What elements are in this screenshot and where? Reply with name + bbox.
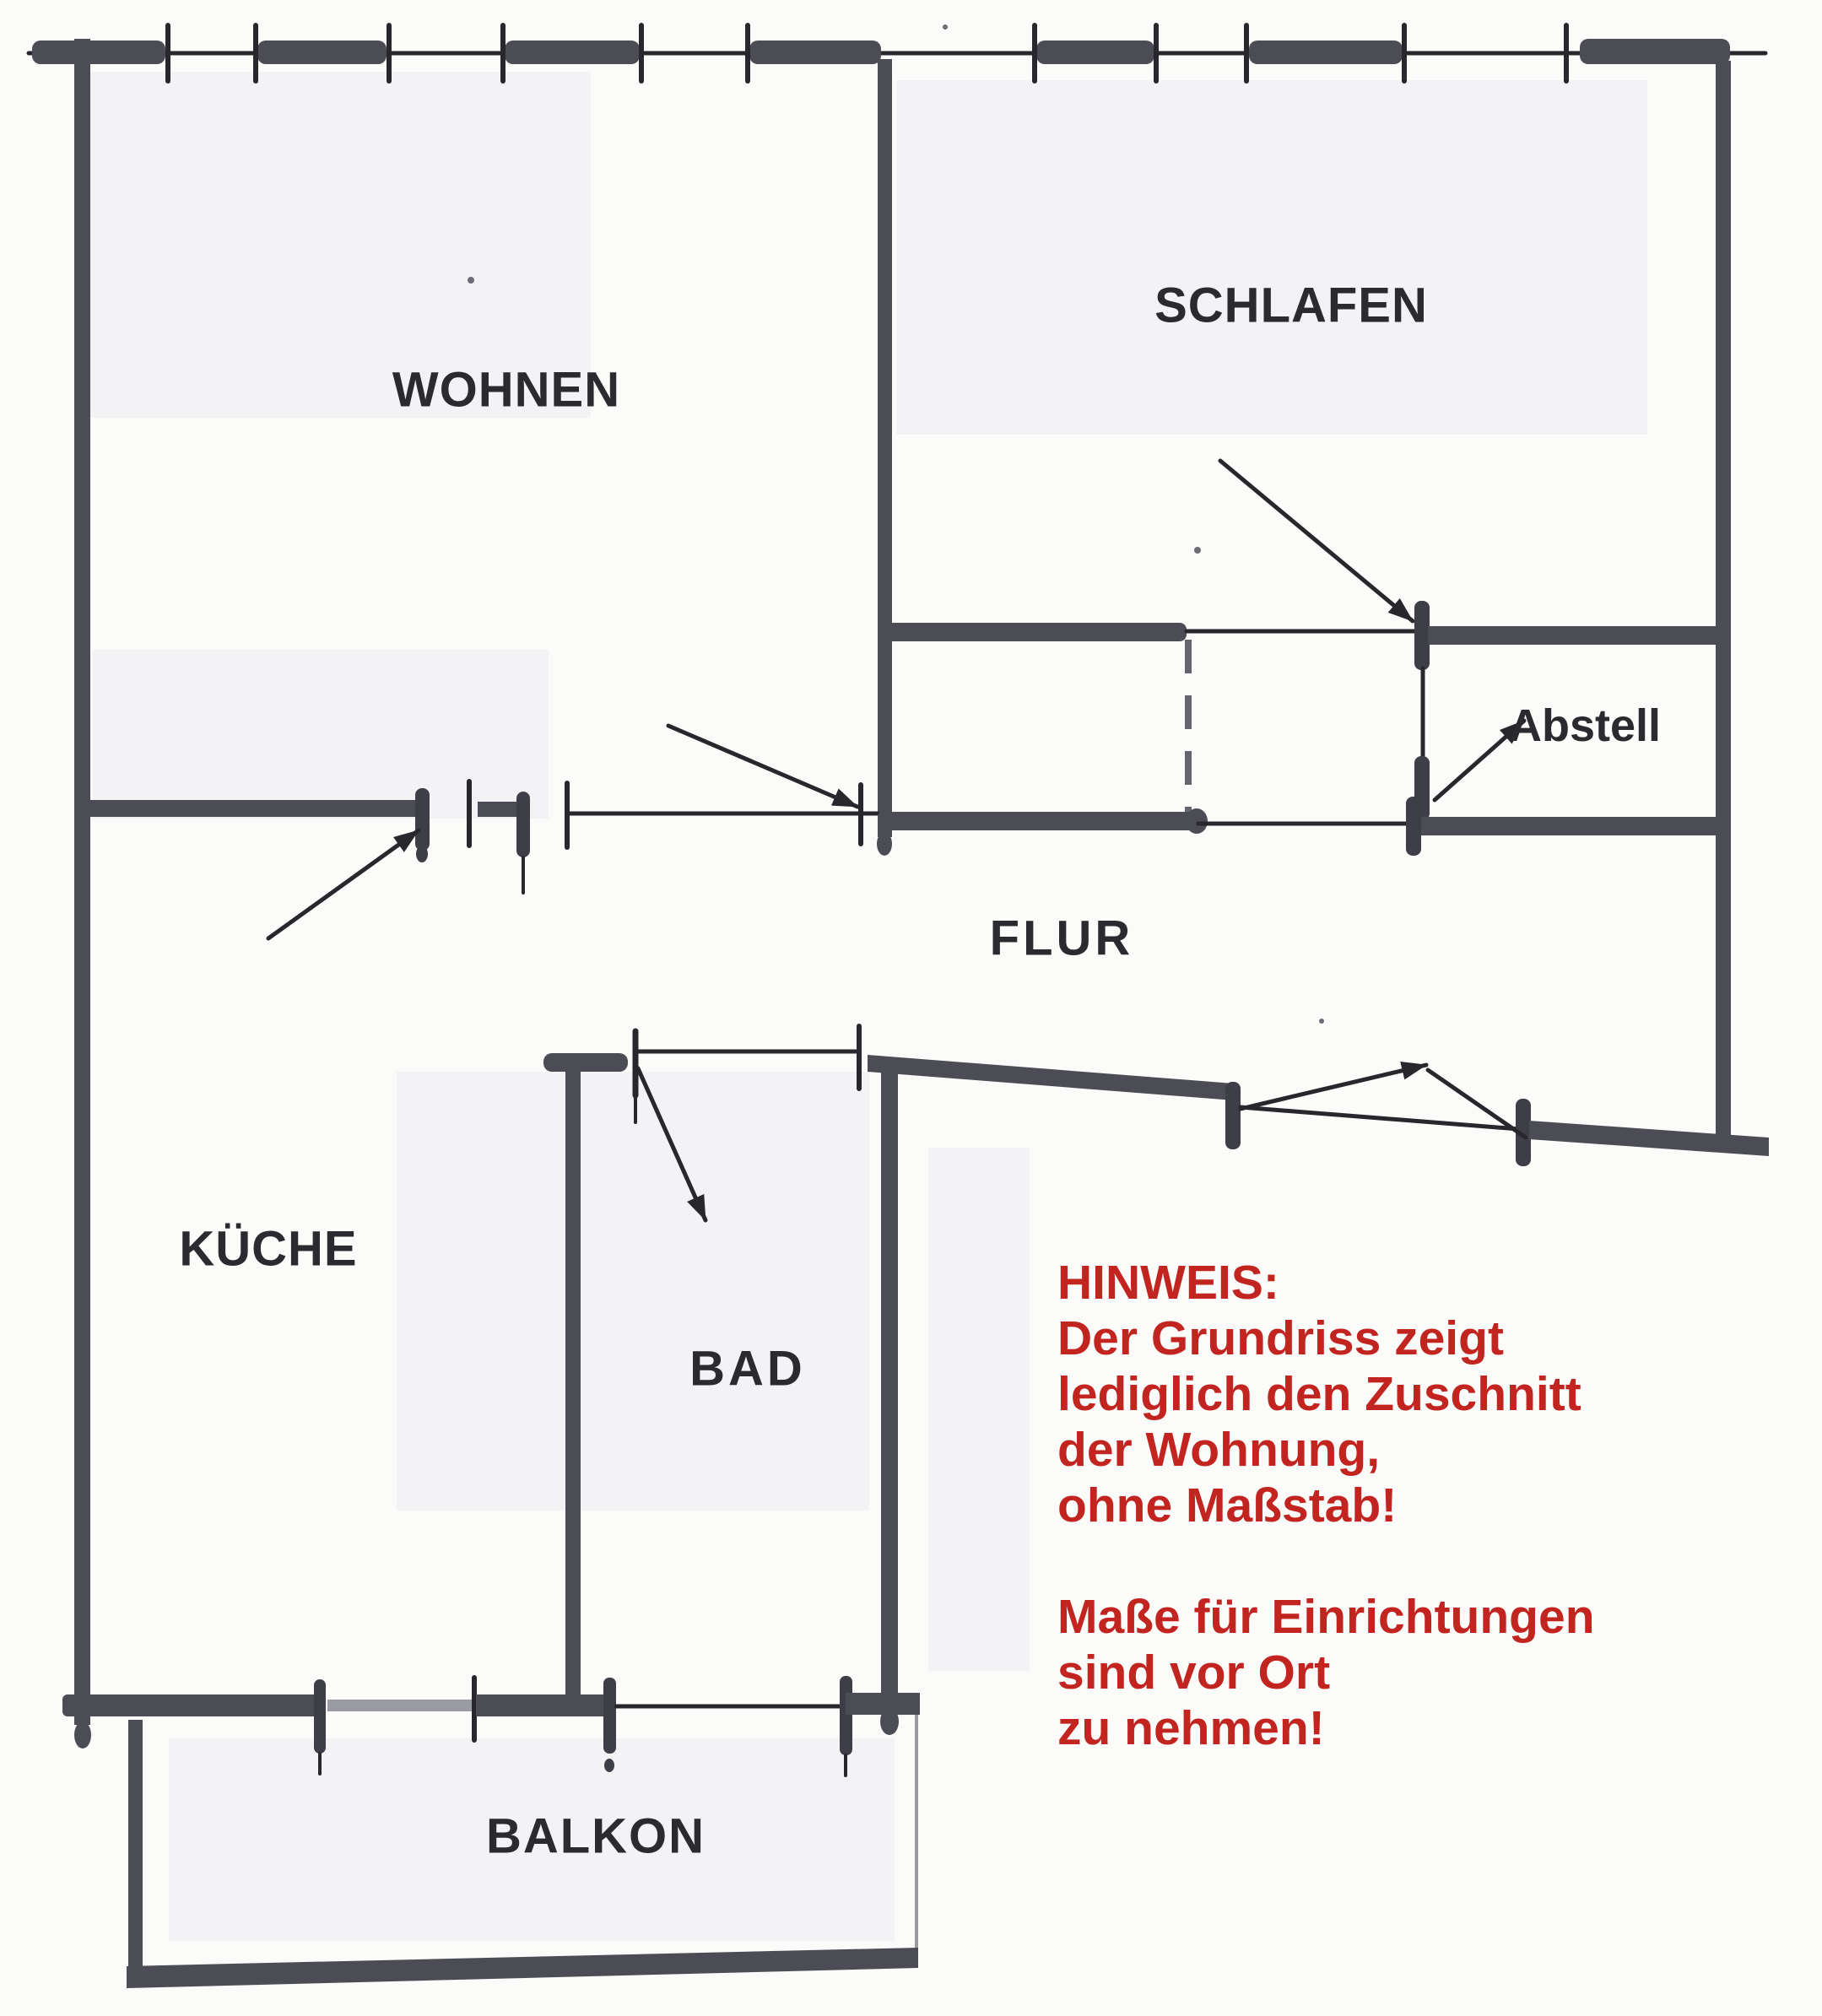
door-swing-wohnen (668, 726, 857, 807)
room-label-kueche: KÜCHE (179, 1221, 357, 1278)
bottom-wall (476, 1694, 608, 1716)
note-line: sind vor Ort (1057, 1645, 1330, 1700)
entrance-opening-line (1241, 1107, 1519, 1129)
window-bar (505, 41, 640, 64)
bad-right-wall (881, 1058, 898, 1710)
abstell-bottom-wall (1421, 817, 1717, 835)
note-line: der Wohnung, (1057, 1422, 1380, 1478)
wall-end-blob (1186, 808, 1208, 834)
kueche-bad-divider-wall (565, 1058, 581, 1715)
window-light-band (327, 1700, 473, 1711)
door-swing-schlafen (1220, 461, 1413, 621)
room-label-abstell: Abstell (1509, 700, 1661, 752)
flur-top-wall (878, 812, 1198, 830)
scan-speck (943, 24, 948, 30)
window-bar (1580, 39, 1730, 64)
bad-top-wall (543, 1053, 628, 1072)
ink-drip (604, 1759, 614, 1772)
note-line-hinweis: HINWEIS: (1057, 1255, 1279, 1311)
door-post (840, 1676, 852, 1755)
scan-shade (397, 1072, 869, 1511)
schlafen-bottom-wall (878, 623, 1187, 641)
wall-end-blob (877, 832, 892, 856)
window-bar (257, 41, 387, 64)
door-swing-entrance (1241, 1065, 1426, 1109)
scan-speck (468, 277, 474, 284)
door-post (516, 792, 530, 857)
room-label-schlafen: SCHLAFEN (1154, 278, 1428, 334)
scan-shade (896, 80, 1647, 435)
room-label-bad: BAD (689, 1341, 806, 1397)
balkon-left-wall (128, 1720, 143, 1973)
window-bar (749, 41, 881, 64)
divider-wall-wohnen-schlafen (878, 59, 892, 837)
note-line: lediglich den Zuschnitt (1057, 1366, 1581, 1422)
outer-wall-left (74, 39, 90, 1725)
window-bar (1249, 41, 1403, 64)
scan-speck (1194, 547, 1201, 554)
window-bar (32, 41, 165, 64)
note-line: Der Grundriss zeigt (1057, 1311, 1504, 1366)
door-swing-kueche (268, 830, 419, 938)
flur-bottom-wall (868, 1055, 1234, 1100)
floor-plan: WOHNEN SCHLAFEN Abstell FLUR KÜCHE BAD B… (0, 0, 1822, 2016)
balkon-bottom-wall (127, 1948, 918, 1988)
wohnen-kueche-wall (76, 800, 422, 817)
wall-stub (478, 802, 518, 817)
bottom-wall (846, 1693, 920, 1715)
door-post (1406, 797, 1421, 856)
window-bar (1036, 41, 1154, 64)
door-post (603, 1678, 616, 1754)
note-line: zu nehmen! (1057, 1700, 1325, 1756)
note-line: ohne Maßstab! (1057, 1478, 1397, 1533)
door-post (1414, 601, 1430, 670)
abstell-top-wall (1428, 626, 1717, 645)
scan-speck (1319, 1019, 1324, 1024)
bottom-wall (62, 1694, 324, 1716)
scan-shade (93, 650, 549, 819)
wall-end-blob (74, 1721, 91, 1748)
door-post (1225, 1082, 1241, 1149)
door-post (314, 1679, 326, 1754)
room-label-balkon: BALKON (486, 1808, 706, 1865)
room-label-wohnen: WOHNEN (392, 362, 620, 419)
wall-end-blob (416, 846, 428, 862)
flur-bottom-wall-right (1529, 1121, 1769, 1156)
floor-plan-drawing (0, 0, 1822, 2016)
door-post (415, 788, 430, 851)
note-line: Maße für Einrichtungen (1057, 1589, 1595, 1645)
scan-shade (928, 1148, 1030, 1671)
outer-wall-right (1716, 61, 1731, 1139)
room-label-flur: FLUR (990, 911, 1134, 967)
